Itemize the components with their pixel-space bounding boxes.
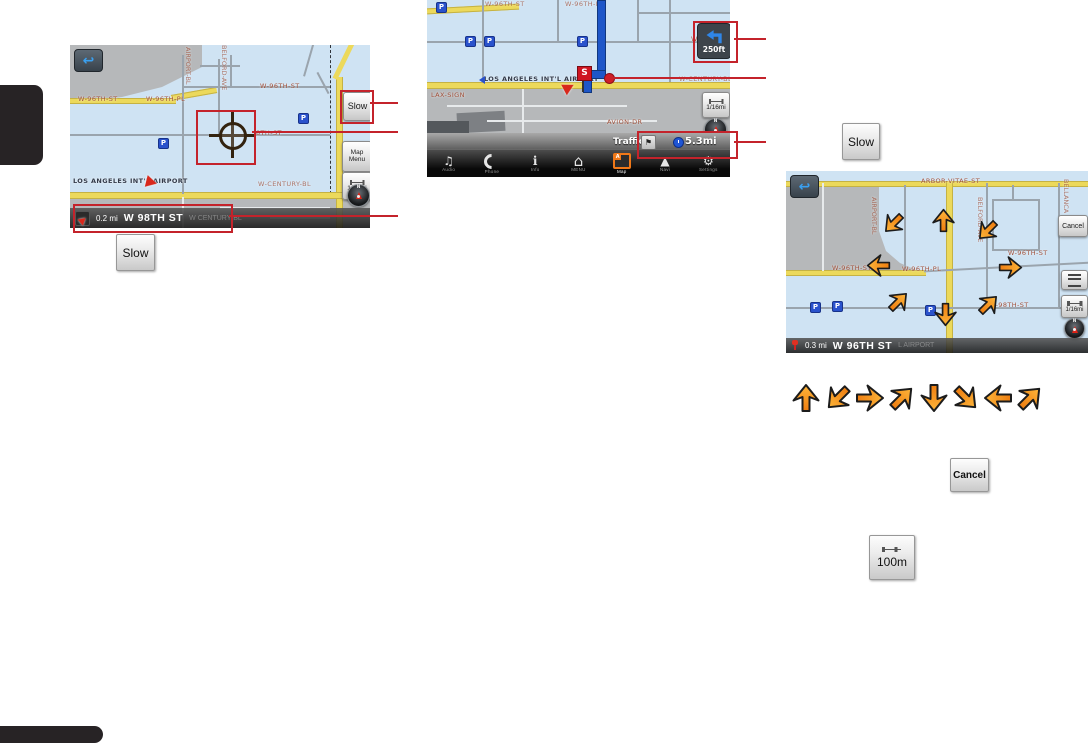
compass-icon[interactable]: N: [1064, 318, 1085, 339]
inline-cancel-button: Cancel: [950, 458, 989, 492]
nav-label: Audio: [442, 167, 455, 172]
distance-readout: 0.3 mi: [805, 341, 827, 350]
legend-arrow-icon: [817, 377, 859, 419]
street: [822, 183, 824, 271]
street: [447, 105, 627, 107]
scale-label: 100m: [877, 555, 907, 569]
street: [637, 0, 639, 41]
cancel-label: Cancel: [1062, 223, 1084, 230]
traffic-flow-arrow-icon: [881, 284, 916, 319]
callout-rect-crosshair: [196, 110, 256, 165]
route-line: [597, 0, 606, 76]
callout-line: [229, 215, 398, 217]
street: [557, 0, 559, 41]
street: [316, 72, 329, 94]
callout-rect-traffic: [637, 131, 738, 159]
traffic-flow-arrow-icon: [931, 208, 956, 233]
street-label: W-96TH-ST: [260, 82, 300, 90]
parking-icon: P: [810, 302, 821, 313]
traffic-flow-arrow-icon: [971, 287, 1006, 322]
nav-label: Map: [617, 169, 627, 174]
back-icon: ↩: [799, 180, 811, 194]
slow-label: Slow: [122, 246, 148, 260]
traffic-flow-arrow-icon: [933, 302, 958, 327]
street-label: ARBOR-VITAE-ST: [921, 177, 980, 185]
music-note-icon: ♫: [443, 155, 454, 167]
scale-label: 1/16mi: [1065, 307, 1083, 313]
street: [522, 86, 524, 133]
street-label: AIRPORT-BL: [870, 197, 878, 235]
parking-icon: P: [436, 2, 447, 13]
street-ghost-text: L AIRPORT: [898, 342, 934, 349]
parking-icon: P: [465, 36, 476, 47]
callout-line: [734, 38, 766, 40]
scale-ruler-icon: [882, 546, 902, 552]
legend-arrow-icon: [945, 377, 987, 419]
callout-line: [252, 131, 398, 133]
traffic-flow-arrow-icon: [866, 253, 891, 278]
callout-line: [370, 102, 398, 104]
map-info-bar: 0.3 mi W 96TH ST L AIRPORT: [786, 338, 1088, 353]
traffic-flow-arrow-icon: [998, 255, 1023, 280]
boundary-line: [330, 45, 331, 194]
parking-icon: P: [484, 36, 495, 47]
street: [1058, 183, 1060, 307]
info-icon: i: [533, 155, 538, 167]
inline-slow-button: Slow: [842, 123, 880, 160]
nav-item-info[interactable]: i Info: [514, 150, 557, 177]
scale-label: 1/16mi: [706, 105, 726, 112]
callout-line: [734, 141, 766, 143]
parking-icon: P: [577, 36, 588, 47]
inline-slow-button: Slow: [116, 234, 155, 271]
callout-line: [612, 77, 766, 79]
back-icon: ↩: [83, 54, 95, 68]
legend-arrow-icon: [1009, 377, 1051, 419]
nav-label: Info: [531, 167, 540, 172]
list-button[interactable]: [1061, 270, 1088, 290]
section-tab: [0, 85, 43, 165]
street-label: BELFORD-AVE: [220, 45, 228, 90]
compass-icon[interactable]: N: [347, 184, 370, 207]
terminal-building: [427, 121, 469, 133]
nav-item-audio[interactable]: ♫ Audio: [427, 150, 470, 177]
callout-rect-turnpanel: [693, 21, 738, 63]
home-icon: ⌂: [574, 155, 584, 167]
street-label: W-96TH-ST: [485, 0, 525, 8]
legend-arrow-icon: [881, 377, 923, 419]
scale-ruler-icon: [709, 98, 724, 104]
nav-label: Settings: [699, 167, 718, 172]
parking-icon: P: [298, 113, 309, 124]
nav-label: Navi: [660, 167, 670, 172]
figure-traffic-map: ARBOR-VITAE-ST BELLANCA BELFORD-AVE AIRP…: [786, 171, 1088, 353]
nav-label: MENU: [571, 167, 585, 172]
street-name-readout: W 96TH ST: [833, 340, 892, 352]
street-label: BELLANCA: [1062, 179, 1070, 213]
street-label: LOS ANGELES INT'L AIRPORT: [73, 177, 188, 185]
scale-ruler-icon: [1067, 300, 1082, 306]
street-label: LAX-SIGN: [431, 91, 465, 99]
flag-label: S: [581, 68, 587, 78]
slow-label: Slow: [848, 135, 874, 149]
street: [230, 55, 232, 86]
street: [1012, 185, 1014, 201]
road: [333, 45, 357, 80]
back-button[interactable]: ↩: [790, 175, 819, 198]
callout-rect-infobar: [73, 204, 233, 233]
inline-scale-button: 100m: [869, 535, 915, 580]
parking-icon: P: [158, 138, 169, 149]
map-icon: A: [613, 153, 631, 169]
street-label: AIRPORT-BL: [184, 47, 192, 85]
street: [303, 45, 315, 77]
street: [182, 86, 330, 88]
map-scale-button[interactable]: 1/16mi: [702, 92, 730, 118]
pin-icon: [791, 340, 799, 351]
street: [637, 12, 730, 14]
callout-rect-slow: [340, 90, 374, 124]
road: [946, 181, 953, 353]
nav-item-phone[interactable]: Phone: [470, 150, 513, 177]
back-button[interactable]: ↩: [74, 49, 103, 72]
street-label: W-96TH-PL: [902, 265, 941, 273]
left-arrow-icon: [475, 76, 485, 84]
map-menu-button[interactable]: Map Menu: [342, 141, 370, 172]
nav-item-menu[interactable]: ⌂ MENU: [557, 150, 600, 177]
destination-flag-icon: S: [577, 66, 592, 81]
cancel-button[interactable]: Cancel: [1058, 215, 1088, 237]
page-number-pill: [0, 726, 103, 743]
airport-road: [70, 192, 370, 199]
map-menu-label: Menu: [349, 157, 365, 164]
street-label: W-96TH-PL: [146, 95, 185, 103]
list-icon: [1068, 274, 1081, 287]
street-label: AVION-DR: [607, 118, 642, 126]
street-label: W-96TH-ST: [78, 95, 118, 103]
parking-icon: P: [832, 301, 843, 312]
manual-page: W-96TH-ST W-96TH-PL W-96TH-ST 8TH-ST LOS…: [0, 0, 1088, 755]
map-scale-button[interactable]: 1/16mi: [1061, 295, 1088, 318]
street-label: W-CENTURY-BL: [258, 180, 311, 188]
cancel-label: Cancel: [953, 470, 986, 481]
traffic-arrow-legend-row: [791, 383, 1045, 413]
